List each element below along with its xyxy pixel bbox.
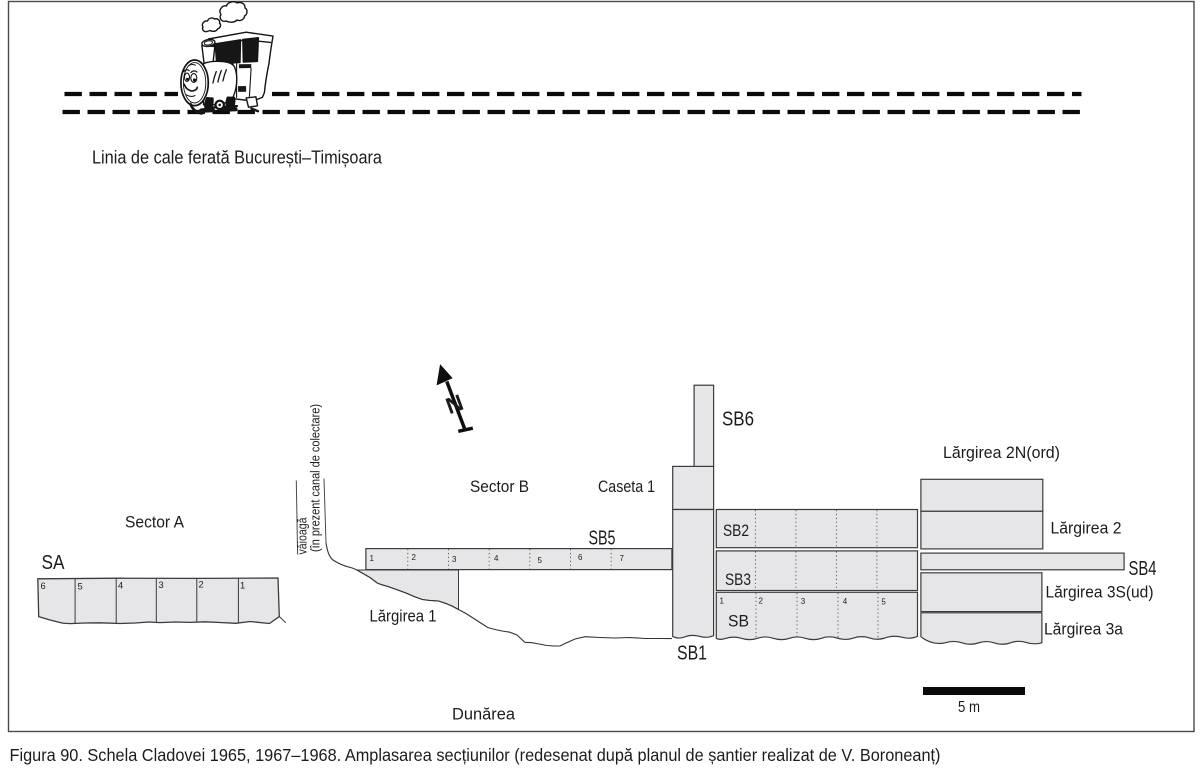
svg-text:7: 7 — [620, 554, 625, 563]
svg-text:Lărgirea 3S(ud): Lărgirea 3S(ud) — [1046, 583, 1154, 602]
svg-text:5: 5 — [538, 556, 543, 565]
svg-text:SB4: SB4 — [1129, 558, 1157, 580]
svg-text:5 m: 5 m — [958, 699, 980, 716]
svg-text:Lărgirea 2: Lărgirea 2 — [1051, 519, 1122, 538]
svg-text:1: 1 — [370, 554, 375, 563]
svg-text:2: 2 — [759, 597, 764, 606]
svg-text:(în prezent canal de colectare: (în prezent canal de colectare) — [308, 404, 323, 552]
svg-text:2: 2 — [412, 553, 417, 562]
svg-text:Sector A: Sector A — [125, 513, 185, 532]
svg-text:5: 5 — [881, 598, 886, 607]
svg-text:Caseta 1: Caseta 1 — [598, 477, 655, 496]
svg-text:4: 4 — [118, 581, 123, 591]
svg-text:4: 4 — [843, 597, 848, 606]
svg-text:SB6: SB6 — [722, 409, 754, 431]
svg-text:6: 6 — [578, 553, 583, 562]
svg-text:4: 4 — [494, 554, 499, 563]
svg-text:Lărgirea 3a: Lărgirea 3a — [1044, 620, 1123, 639]
svg-text:SB1: SB1 — [677, 643, 707, 665]
svg-text:3: 3 — [159, 580, 164, 590]
svg-text:Lărgirea 1: Lărgirea 1 — [370, 607, 437, 626]
svg-text:Lărgirea 2N(ord): Lărgirea 2N(ord) — [943, 443, 1060, 462]
svg-text:1: 1 — [240, 581, 245, 591]
svg-text:3: 3 — [452, 555, 457, 564]
svg-text:Sector B: Sector B — [470, 477, 529, 496]
svg-text:3: 3 — [801, 597, 806, 606]
svg-text:SA: SA — [42, 552, 66, 574]
svg-text:Linia de cale ferată București: Linia de cale ferată București–Timișoara — [92, 148, 383, 168]
svg-text:5: 5 — [78, 582, 83, 592]
svg-text:6: 6 — [41, 581, 46, 591]
svg-text:SB5: SB5 — [589, 528, 616, 550]
svg-text:1: 1 — [720, 597, 725, 606]
svg-text:SB2: SB2 — [723, 521, 749, 540]
svg-text:SB3: SB3 — [725, 570, 751, 589]
svg-text:2: 2 — [199, 580, 204, 590]
svg-text:SB: SB — [728, 612, 749, 631]
svg-text:Dunărea: Dunărea — [452, 705, 516, 724]
svg-text:Figura 90. Schela Cladovei 196: Figura 90. Schela Cladovei 1965, 1967–19… — [10, 745, 941, 765]
